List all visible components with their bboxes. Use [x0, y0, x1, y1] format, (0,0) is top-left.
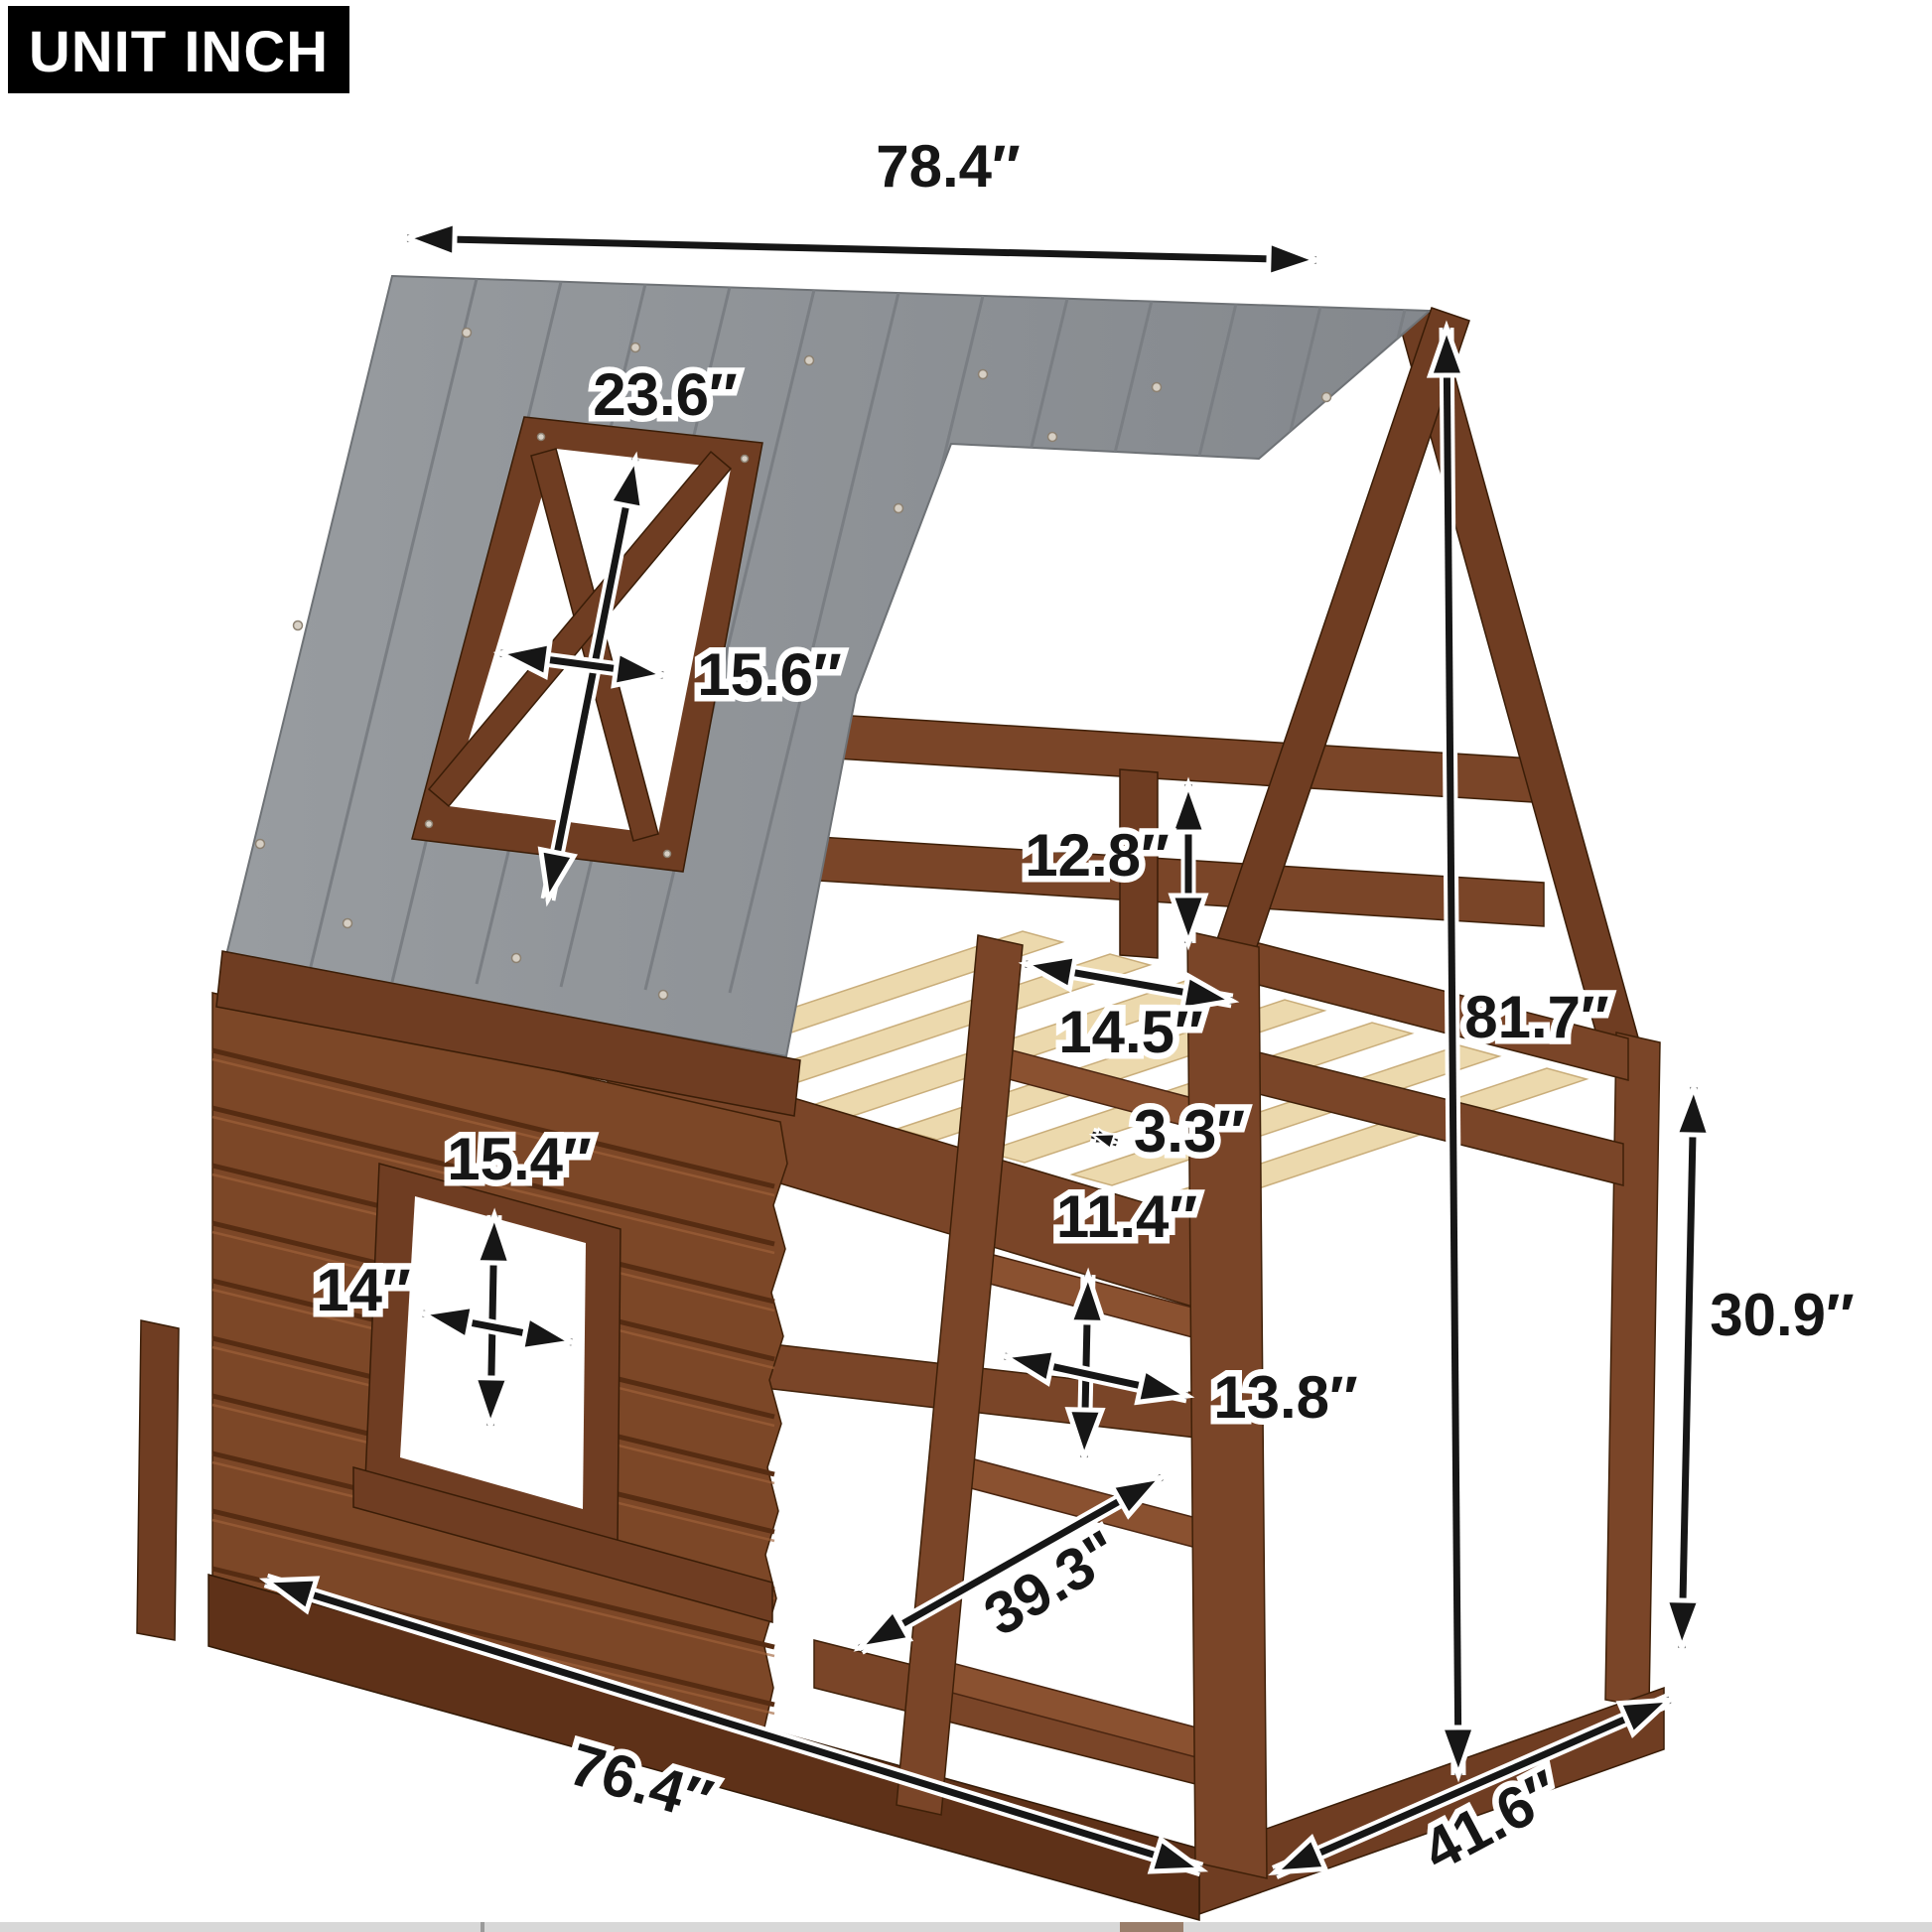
dim-slat-width-label: 3.3″: [1134, 1098, 1245, 1165]
bottom-image-strip: [0, 1922, 1932, 1932]
dim-window-height-label: 15.4″: [447, 1126, 592, 1192]
house-bed-frame: [137, 276, 1664, 1920]
rear-left-leg: [137, 1320, 179, 1640]
dim-skylight-height-label: 23.6″: [593, 361, 738, 428]
dim-top-width: 78.4″: [407, 133, 1317, 277]
dim-window-width-label: 14″: [316, 1257, 410, 1323]
unit-badge: UNIT INCH: [8, 6, 349, 93]
dim-ladder-width-label: 13.8″: [1213, 1364, 1358, 1431]
unit-badge-label: UNIT INCH: [29, 20, 329, 84]
dim-ladder-opening-label: 14.5″: [1058, 999, 1203, 1065]
product-dimension-diagram: 78.4″ 23.6″ 15.6″ 12.8″ 14.5″ 3.3″ 81.7″…: [0, 0, 1932, 1932]
dim-top-width-label: 78.4″: [876, 133, 1021, 200]
diagram-canvas: 78.4″ 23.6″ 15.6″ 12.8″ 14.5″ 3.3″ 81.7″…: [0, 0, 1932, 1932]
dim-clearance-height-label: 30.9″: [1710, 1282, 1855, 1348]
dim-guardrail-height-label: 12.8″: [1025, 822, 1170, 889]
rear-right-post: [1605, 1033, 1660, 1708]
dim-overall-height-label: 81.7″: [1464, 984, 1609, 1050]
dim-clearance-height: 30.9″: [1665, 1087, 1855, 1649]
dim-skylight-width-label: 15.6″: [697, 641, 842, 708]
dim-rung-spacing-label: 11.4″: [1056, 1183, 1197, 1250]
